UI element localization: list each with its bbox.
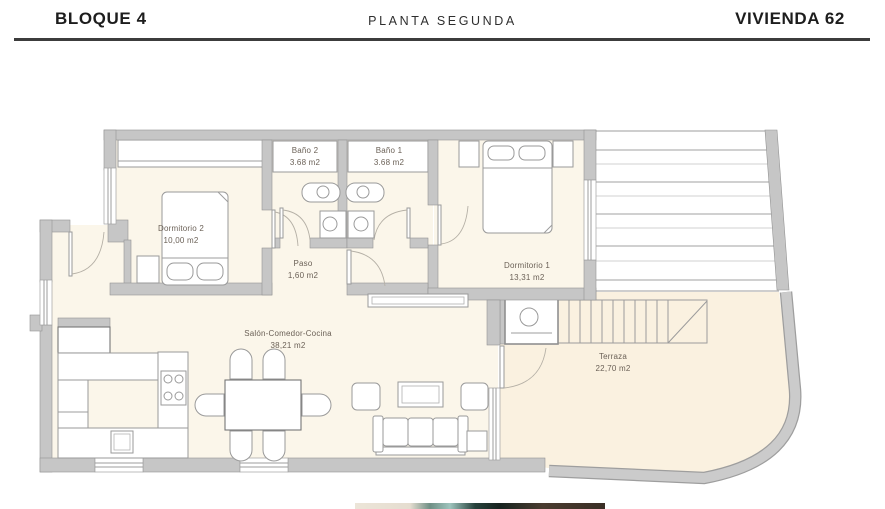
toilet-bano-1 — [348, 211, 374, 238]
bed-dormitorio-1 — [483, 141, 552, 233]
nightstand-left-dormitorio-1 — [459, 141, 479, 167]
area-terraza: 22,70 m2 — [596, 364, 631, 373]
coffee-table — [398, 382, 443, 407]
floor-plan-page: BLOQUE 4 PLANTA SEGUNDA VIVIENDA 62 — [0, 0, 885, 509]
armchair-left — [352, 383, 380, 410]
nightstand-dormitorio-2 — [137, 256, 159, 283]
toilet-bano-2 — [320, 211, 346, 238]
label-dormitorio-1: Dormitorio 1 — [504, 261, 550, 270]
area-dormitorio-1: 13,31 m2 — [510, 273, 545, 282]
side-table — [467, 431, 487, 451]
area-bano-2: 3.68 m2 — [290, 158, 321, 167]
label-terraza: Terraza — [599, 352, 627, 361]
exterior-stair-area — [596, 130, 789, 290]
label-bano-1: Baño 1 — [376, 146, 403, 155]
dining-table — [225, 380, 301, 430]
kitchen-counter-top-run — [58, 353, 158, 380]
floor-plan-drawing: Dormitorio 2 10,00 m2 Baño 2 3.68 m2 Bañ… — [0, 0, 885, 509]
area-paso: 1,60 m2 — [288, 271, 319, 280]
wardrobe-dormitorio-2 — [118, 140, 263, 167]
area-salon: 38,21 m2 — [271, 341, 306, 350]
stove — [161, 371, 186, 405]
nightstand-right-dormitorio-1 — [553, 141, 573, 167]
area-bano-1: 3.68 m2 — [374, 158, 405, 167]
label-paso: Paso — [293, 259, 312, 268]
tv-sideboard — [368, 294, 468, 307]
area-dormitorio-2: 10,00 m2 — [164, 236, 199, 245]
label-bano-2: Baño 2 — [292, 146, 319, 155]
laundry-closet — [500, 298, 558, 344]
armchair-right — [461, 383, 488, 410]
label-dormitorio-2: Dormitorio 2 — [158, 224, 204, 233]
label-salon: Salón-Comedor-Cocina — [244, 329, 332, 338]
sofa — [373, 416, 468, 455]
kitchen-closet — [58, 327, 110, 353]
photo-strip — [355, 503, 605, 509]
kitchen-sink — [111, 431, 133, 453]
